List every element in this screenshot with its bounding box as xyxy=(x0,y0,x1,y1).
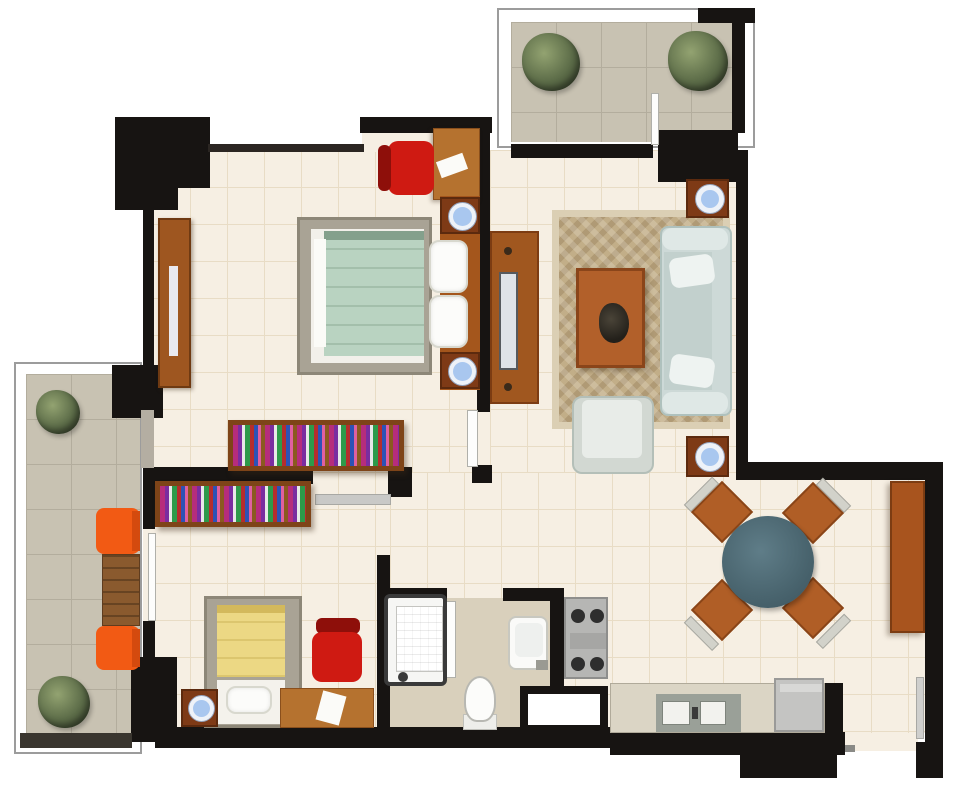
lamp-shade xyxy=(701,190,719,208)
wall-balcony-left-south xyxy=(20,733,132,748)
desk-chair-bedroom1 xyxy=(378,139,436,197)
floor-plan-canvas xyxy=(0,0,965,807)
lamp-base xyxy=(448,357,477,386)
lamp-base xyxy=(695,442,725,472)
sideboard xyxy=(890,481,925,633)
chair-seat xyxy=(388,141,434,195)
sofa xyxy=(660,226,732,416)
dresser xyxy=(158,218,191,388)
desk-paper xyxy=(316,690,347,725)
armchair xyxy=(572,396,654,474)
tub-basin xyxy=(396,606,443,672)
lamp-base xyxy=(695,184,725,214)
desk-chair-bedroom2 xyxy=(310,618,364,682)
bedroom1-door-floor xyxy=(477,410,490,470)
sink-basin-right xyxy=(700,701,726,725)
bookshelf-1 xyxy=(228,420,404,471)
wall-entry-corner xyxy=(916,742,943,778)
sofa-armrest-bottom xyxy=(662,392,728,414)
nightstand-bedroom1-bottom xyxy=(440,352,480,389)
desk-paper xyxy=(436,153,468,179)
entry-threshold-mark xyxy=(845,745,855,752)
wall-corner-bottomleft xyxy=(131,657,177,742)
console-knob-bottom xyxy=(504,383,512,391)
sink-tap xyxy=(692,707,698,719)
plant-balcony-left-1 xyxy=(36,390,80,434)
bed-bedroom1 xyxy=(297,217,432,375)
sink-tap xyxy=(536,660,548,670)
wall-divider-stub xyxy=(388,467,412,497)
balcony-chair-1 xyxy=(96,508,140,554)
bathtub xyxy=(384,594,447,686)
bathroom-sink xyxy=(508,616,548,670)
armchair-cushion xyxy=(582,400,642,458)
wall-south-protrusion xyxy=(740,750,837,778)
toilet-bowl xyxy=(464,676,496,722)
bed-blanket xyxy=(324,231,424,356)
sink-basin-left xyxy=(662,701,690,725)
stove xyxy=(564,597,608,679)
chair-edge xyxy=(132,629,140,667)
stove-panel xyxy=(570,633,606,649)
appliance-handle xyxy=(780,684,822,692)
door-leaf-entry xyxy=(916,677,924,739)
door-leaf-balcony-top xyxy=(651,93,659,145)
lamp-shade xyxy=(453,362,472,381)
burner xyxy=(590,609,604,623)
wall-bedroom1-east-stub xyxy=(472,465,492,483)
desk-bedroom1 xyxy=(433,128,480,200)
lamp-base xyxy=(448,202,477,231)
shower-stall xyxy=(520,686,608,733)
chair-edge xyxy=(132,511,140,551)
wall-corner-topleft-2 xyxy=(115,188,178,210)
side-table-living-top xyxy=(686,179,729,218)
plant-balcony-left-2 xyxy=(38,676,90,728)
bed-blanket xyxy=(217,605,285,677)
tub-faucet xyxy=(398,672,408,682)
table-plant xyxy=(599,303,629,343)
plant-balcony-top-1 xyxy=(522,33,580,91)
tv-console xyxy=(490,231,539,404)
wall-dining-east xyxy=(925,462,943,778)
bookshelf-2 xyxy=(155,481,311,527)
lamp-shade xyxy=(193,700,210,717)
wall-dining-north xyxy=(736,462,943,480)
burner xyxy=(571,609,585,623)
wall-living-northeast-block xyxy=(658,130,738,182)
wall-bedroom1-north xyxy=(208,144,364,152)
console-knob-top xyxy=(504,247,512,255)
wall-balcony-left-bump xyxy=(112,365,163,418)
balcony-chair-2 xyxy=(96,626,140,670)
sofa-pillow-top xyxy=(668,253,716,289)
lamp-base xyxy=(188,695,215,722)
kitchen-sink-unit xyxy=(656,694,741,732)
window-bedroom1-balcony xyxy=(141,410,154,468)
coffee-table xyxy=(576,268,645,368)
toilet xyxy=(461,676,499,730)
chair-back xyxy=(378,145,391,191)
sofa-pillow-bottom xyxy=(668,353,716,389)
plant-balcony-top-2 xyxy=(668,31,728,91)
wall-kitchen-stub xyxy=(823,683,843,735)
nightstand-bedroom1-top xyxy=(440,197,480,234)
dining-table xyxy=(722,516,814,608)
wall-balcony-top-east xyxy=(732,23,745,133)
burner xyxy=(590,657,604,671)
door-leaf-bedroom2-balcony xyxy=(148,533,156,621)
wall-living-north xyxy=(511,144,653,158)
door-leaf-bedroom1 xyxy=(467,410,478,467)
wall-balcony-top-corner xyxy=(698,8,755,23)
tv-screen xyxy=(499,272,518,370)
door-leaf-bedroom2 xyxy=(315,494,391,505)
burner xyxy=(571,657,585,671)
bed1-pillow-1 xyxy=(429,240,468,293)
lamp-shade xyxy=(701,448,719,466)
nightstand-bedroom2 xyxy=(181,689,218,727)
wall-corner-topleft xyxy=(115,117,210,188)
chair-seat xyxy=(312,632,362,682)
wall-bathroom-east xyxy=(550,588,564,690)
sofa-armrest-top xyxy=(662,228,728,250)
dresser-handle xyxy=(169,266,178,356)
balcony-table xyxy=(102,554,140,626)
bed-pillow xyxy=(226,686,272,714)
lamp-shade xyxy=(453,207,472,226)
bed1-pillow-2 xyxy=(429,295,468,348)
kitchen-appliance xyxy=(774,678,824,732)
wall-bedroom2-west-upper xyxy=(143,484,155,529)
desk-bedroom2 xyxy=(280,688,374,728)
wall-living-east xyxy=(736,150,748,474)
bed-sheet xyxy=(314,239,326,347)
side-table-living-bottom xyxy=(686,436,729,477)
wall-bedroom2-west-lower xyxy=(143,619,155,661)
sink-basin xyxy=(515,623,543,657)
